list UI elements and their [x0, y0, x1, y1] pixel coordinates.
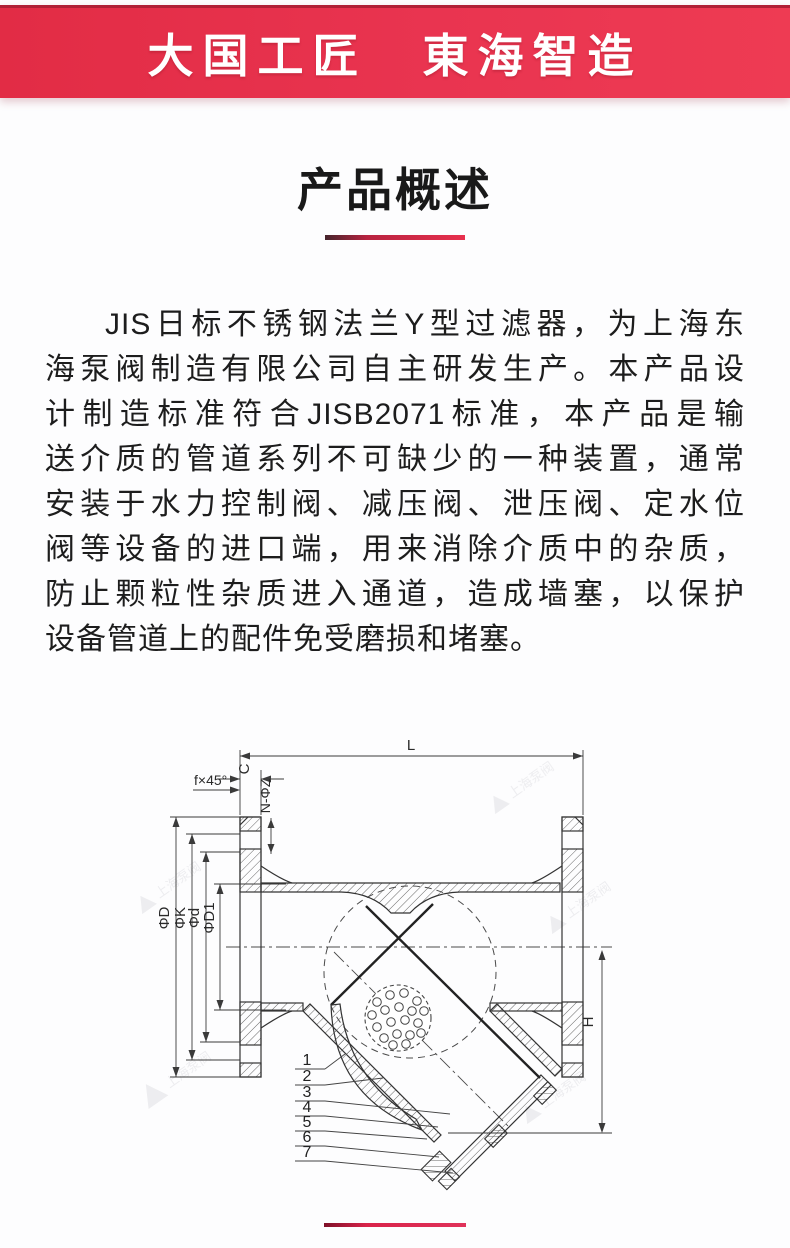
description-line: 防止颗粒性杂质进入通道，造成墙塞，以保护 — [45, 572, 745, 617]
description-line: 海泵阀制造有限公司自主研发生产。本产品设 — [45, 347, 745, 392]
dim-label-C: C — [236, 763, 253, 774]
description-line: 阀等设备的进口端，用来消除介质中的杂质， — [45, 527, 745, 572]
dim-label-L: L — [407, 737, 415, 754]
description-line: 送介质的管道系列不可缺少的一种装置，通常 — [45, 437, 745, 482]
part-number-1: 1 — [303, 1052, 312, 1069]
dim-label-bolt-holes: N-ΦZ — [257, 778, 273, 813]
description-line: 设备管道上的配件免受磨损和堵塞。 — [45, 617, 745, 662]
description-line: JIS日标不锈钢法兰Y型过滤器，为上海东 — [45, 302, 745, 347]
svg-text:上海泵阀: 上海泵阀 — [163, 1049, 214, 1091]
banner: 大国工匠 東海智造 — [0, 5, 790, 98]
description-line: 计制造标准符合JISB2071标准，本产品是输 — [45, 392, 745, 437]
title-underline — [325, 235, 465, 240]
product-description: JIS日标不锈钢法兰Y型过滤器，为上海东 海泵阀制造有限公司自主研发生产。本产品… — [0, 302, 790, 662]
cover-bolts-and-plug — [421, 1082, 556, 1190]
page-title: 产品概述 — [0, 154, 790, 220]
dimension-lines — [170, 750, 612, 1133]
dim-label-H: H — [580, 1017, 597, 1028]
watermark-logo-icon — [543, 911, 567, 934]
dim-label-flange-od: ΦD — [156, 906, 173, 929]
y-strainer-technical-drawing: 上海泵阀 上海泵阀 上海泵阀 上海泵阀 上海泵阀 — [98, 666, 698, 1211]
svg-text:上海泵阀: 上海泵阀 — [505, 759, 556, 801]
watermark-logo-icon — [133, 891, 157, 914]
section-header: 产品概述 — [0, 154, 790, 240]
watermark-logo-icon — [486, 791, 510, 814]
part-number-2: 2 — [303, 1068, 312, 1085]
dim-label-chamfer: f×45° — [194, 772, 227, 788]
screen-edges — [331, 904, 540, 1078]
description-line: 安装于水力控制阀、减压阀、泄压阀、定水位 — [45, 482, 745, 527]
part-number-7: 7 — [303, 1144, 312, 1161]
footer-divider — [324, 1223, 466, 1227]
svg-text:上海泵阀: 上海泵阀 — [152, 859, 203, 901]
banner-title: 大国工匠 東海智造 — [148, 20, 643, 86]
watermark-logo-icon — [136, 1077, 168, 1109]
dim-label-bore: ΦD1 — [201, 902, 218, 933]
perforated-screen — [365, 985, 431, 1051]
y-strainer-section-view: 上海泵阀 上海泵阀 上海泵阀 上海泵阀 上海泵阀 — [98, 666, 698, 1211]
